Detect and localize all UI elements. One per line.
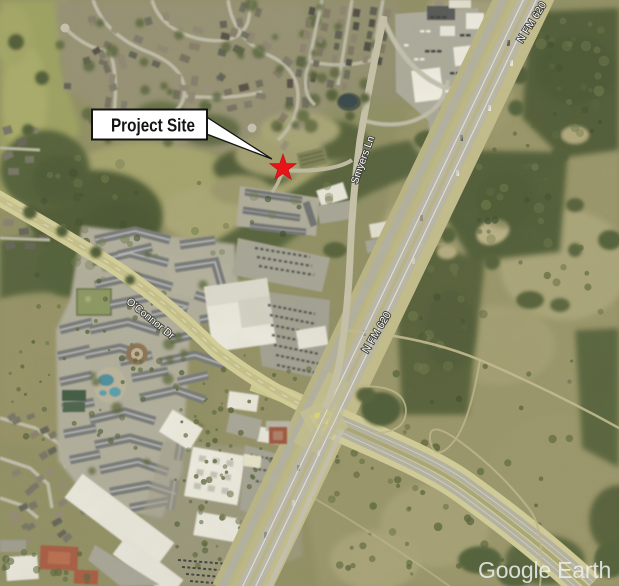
svg-text:Project Site: Project Site — [111, 115, 195, 136]
svg-text:Google Earth: Google Earth — [478, 557, 611, 583]
